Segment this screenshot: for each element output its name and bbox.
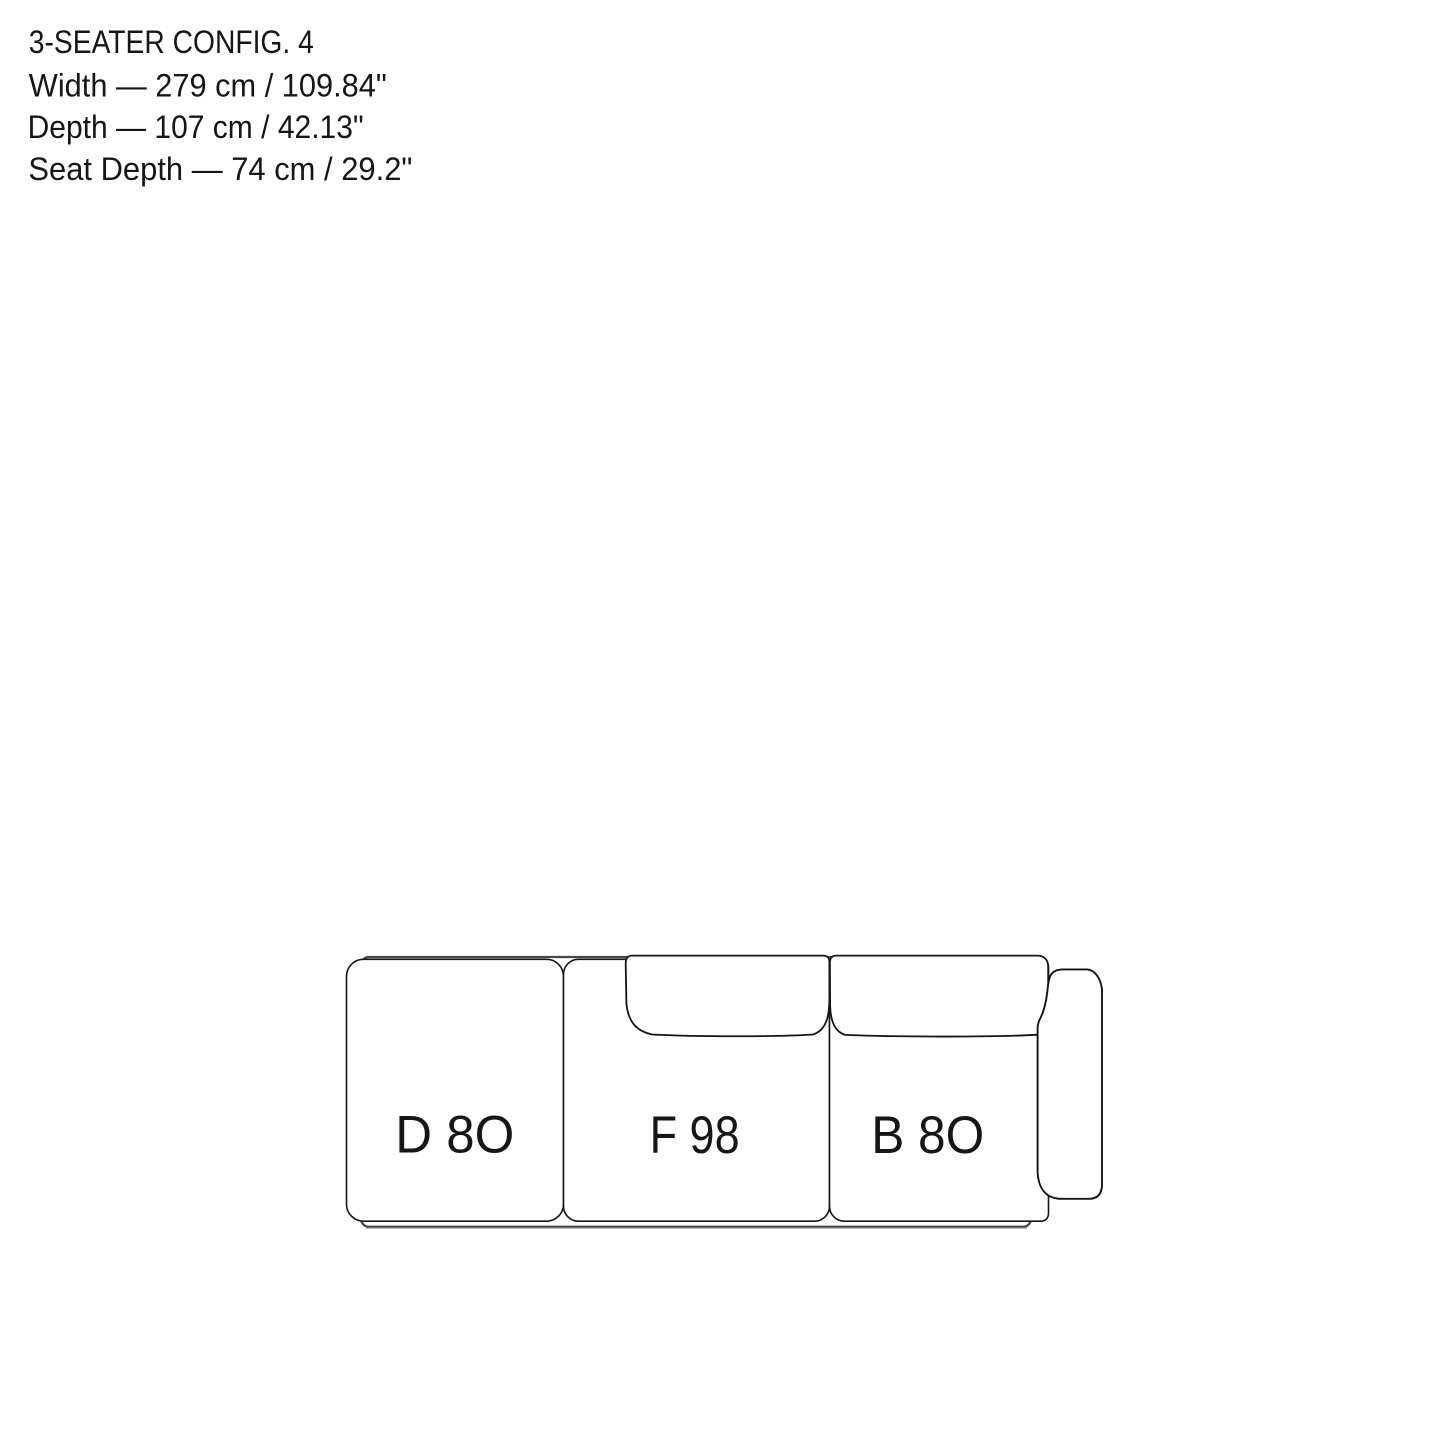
svg-text:D 8O: D 8O [395,1106,514,1165]
svg-text:F 98: F 98 [650,1106,740,1165]
svg-text:Depth — 107 cm / 42.13": Depth — 107 cm / 42.13" [28,109,364,145]
svg-text:3-SEATER CONFIG. 4: 3-SEATER CONFIG. 4 [29,24,314,60]
svg-text:Width — 279 cm / 109.84": Width — 279 cm / 109.84" [29,68,387,104]
svg-text:Seat Depth — 74 cm / 29.2": Seat Depth — 74 cm / 29.2" [28,151,412,187]
svg-text:B 8O: B 8O [871,1106,984,1165]
